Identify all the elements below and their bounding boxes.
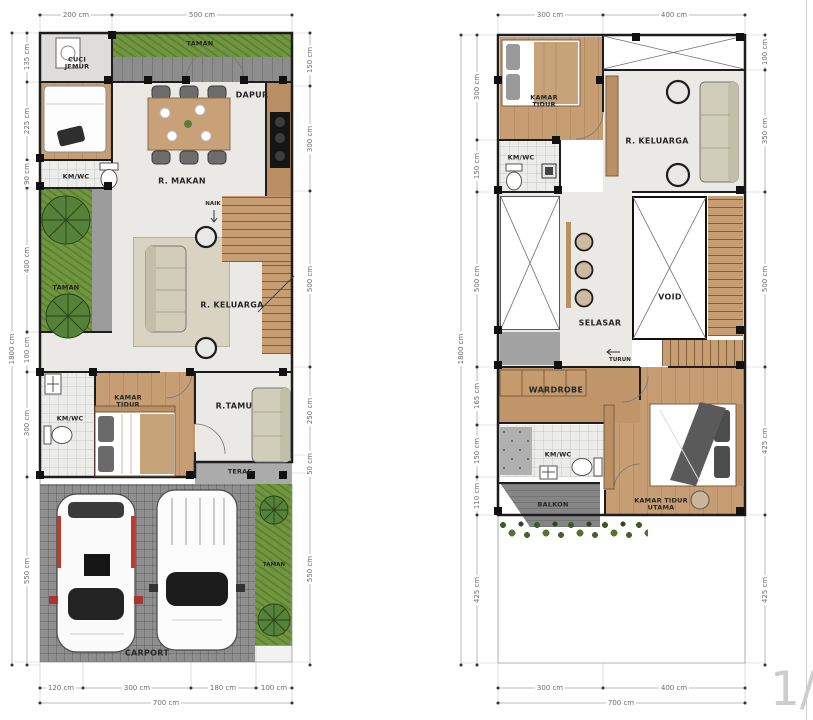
wardrobe-floor	[498, 367, 640, 423]
room-label-balkon: BALKON	[537, 501, 568, 508]
dim-dot	[602, 687, 605, 690]
dim-dot	[26, 476, 29, 479]
garden-path	[92, 188, 112, 332]
dim-label-total: 700 cm	[606, 699, 636, 707]
shaft-ledge	[500, 332, 560, 365]
dim-dot	[39, 687, 42, 690]
room-label-taman-mid: TAMAN	[53, 284, 80, 291]
dim-label: 250 cm	[306, 396, 314, 426]
dim-label: 150 cm	[306, 45, 314, 75]
dim-dot	[309, 32, 312, 35]
dim-label: 550 cm	[23, 556, 31, 586]
dim-dot	[602, 14, 605, 17]
dim-label: 400 cm	[659, 11, 689, 19]
dim-label: 400 cm	[23, 245, 31, 275]
stairs-up-run1	[222, 196, 292, 262]
dim-dot	[26, 664, 29, 667]
planting-strip	[498, 518, 648, 544]
dim-dot	[460, 664, 463, 667]
void-area	[632, 196, 707, 340]
dim-dot	[744, 687, 747, 690]
room-label-taman-bottom: TAMAN	[263, 562, 285, 568]
dim-dot	[764, 69, 767, 72]
dim-dot	[476, 514, 479, 517]
floor-plan-sheet: CUCI JEMUR TAMAN DAPUR R. MAKAN KM/WC TA…	[0, 0, 813, 720]
dim-dot	[11, 664, 14, 667]
stairs-up-run2	[262, 262, 292, 354]
dim-dot	[497, 687, 500, 690]
dim-label: 135 cm	[23, 42, 31, 72]
dim-label: 425 cm	[761, 575, 769, 605]
dim-label-total: 1800 cm	[8, 332, 16, 367]
room-label-r-keluarga: R. KELUARGA	[200, 300, 263, 309]
structural-column	[494, 507, 502, 515]
dim-label-total: 1800 cm	[457, 332, 465, 367]
roof-open-strip	[603, 35, 745, 70]
dim-dot	[764, 514, 767, 517]
room-label-kamar-tidur: KAMAR TIDUR	[106, 395, 150, 410]
dim-label: 120 cm	[46, 684, 76, 692]
dim-label: 200 cm	[61, 11, 91, 19]
family-room-floor	[603, 70, 743, 192]
dim-label: 500 cm	[306, 264, 314, 294]
dim-dot	[291, 702, 294, 705]
dim-label: 300 cm	[23, 408, 31, 438]
room-label-r-keluarga-up: R. KELUARGA	[625, 136, 688, 145]
dim-label: 225 cm	[23, 106, 31, 136]
room-label-wardrobe: WARDROBE	[529, 385, 583, 394]
dim-dot	[476, 139, 479, 142]
dim-label: 550 cm	[306, 554, 314, 584]
room-label-kmwc-top: KM/WC	[63, 173, 90, 180]
dim-label: 500 cm	[473, 264, 481, 294]
dim-dot	[309, 664, 312, 667]
room-label-cuci-jemur: CUCI JEMUR	[60, 57, 94, 72]
room-label-kamar-tidur-utama: KAMAR TIDUR UTAMA	[630, 498, 692, 513]
dim-dot	[476, 191, 479, 194]
room-label-taman-top: TAMAN	[187, 40, 214, 47]
dim-label: 165 cm	[473, 381, 481, 411]
hall-floor	[40, 332, 112, 372]
dim-dot	[460, 34, 463, 37]
room-label-kamar-tidur-up: KAMAR TIDUR	[522, 95, 566, 110]
taman-mid-strip	[40, 188, 92, 332]
page-number-watermark: 1/1	[770, 662, 813, 717]
dim-label: 500 cm	[187, 11, 217, 19]
dim-dot	[82, 687, 85, 690]
dim-label: 300 cm	[473, 72, 481, 102]
dim-label: 300 cm	[535, 684, 565, 692]
room-label-dapur: DAPUR	[236, 90, 269, 99]
dim-dot	[744, 702, 747, 705]
dim-label: 300 cm	[306, 124, 314, 154]
stair-label-turun: TURUN	[609, 357, 631, 363]
dim-dot	[497, 14, 500, 17]
dim-label: 110 cm	[473, 481, 481, 511]
bedroom2-floor	[500, 37, 603, 140]
dim-label: 500 cm	[761, 264, 769, 294]
dim-dot	[476, 366, 479, 369]
dim-dot	[39, 14, 42, 17]
dim-dot	[26, 371, 29, 374]
dim-label: 150 cm	[473, 151, 481, 181]
room-label-r-tamu: R.TAMU	[216, 401, 253, 410]
r-tamu-floor	[195, 372, 292, 462]
stair-label-naik: NAIK	[205, 201, 221, 207]
kmwc-bottom-floor	[40, 372, 95, 477]
dim-dot	[764, 191, 767, 194]
dim-label: 300 cm	[122, 684, 152, 692]
kmwc-up-floor	[500, 140, 560, 192]
stairs-down-run1	[708, 196, 743, 336]
dim-dot	[26, 81, 29, 84]
living-rug	[133, 237, 230, 347]
shower-area	[500, 427, 532, 475]
dim-dot	[26, 331, 29, 334]
dim-dot	[764, 664, 767, 667]
dim-dot	[744, 14, 747, 17]
dim-dot	[476, 476, 479, 479]
dim-label: 150 cm	[473, 436, 481, 466]
dim-dot	[309, 190, 312, 193]
open-shaft	[500, 196, 560, 330]
room-label-kmwc-bottom: KM/WC	[57, 415, 84, 422]
dim-dot	[111, 14, 114, 17]
kamar-tidur-floor	[95, 372, 195, 477]
dim-label: 350 cm	[761, 116, 769, 146]
service-room-floor	[40, 82, 112, 160]
room-label-void: VOID	[658, 292, 682, 301]
dim-label: 100 cm	[23, 335, 31, 365]
room-label-selasar: SELASAR	[579, 318, 622, 327]
dim-dot	[291, 687, 294, 690]
dim-dot	[476, 424, 479, 427]
room-label-carport: CARPORT	[125, 648, 169, 657]
dim-dot	[497, 702, 500, 705]
dim-dot	[309, 85, 312, 88]
room-label-kmwc-up: KM/WC	[508, 154, 535, 161]
dim-label: 300 cm	[535, 11, 565, 19]
carport-paving	[40, 484, 255, 662]
walkway-bottom	[255, 645, 292, 662]
dim-dot	[255, 687, 258, 690]
dim-label-total: 700 cm	[151, 699, 181, 707]
dim-label: 425 cm	[761, 426, 769, 456]
dim-dot	[764, 366, 767, 369]
dim-label: 400 cm	[659, 684, 689, 692]
dim-dot	[11, 32, 14, 35]
stairs-down-run2	[662, 340, 743, 366]
dim-label: 50 cm	[306, 451, 314, 477]
dim-label: 100 cm	[761, 37, 769, 67]
dim-label: 100 cm	[259, 684, 289, 692]
kitchen-counter	[266, 82, 292, 196]
dim-dot	[26, 32, 29, 35]
room-label-teras: TERAS	[228, 468, 253, 475]
dim-label: 425 cm	[473, 575, 481, 605]
dim-dot	[26, 187, 29, 190]
sheet-border-line	[806, 0, 807, 720]
room-label-kmwc-master: KM/WC	[545, 451, 572, 458]
dim-dot	[190, 687, 193, 690]
dim-label: 180 cm	[208, 684, 238, 692]
dim-dot	[39, 702, 42, 705]
dim-dot	[476, 664, 479, 667]
dim-dot	[291, 14, 294, 17]
entry-walkway	[112, 57, 292, 82]
dim-label: 90 cm	[23, 161, 31, 187]
dim-dot	[309, 366, 312, 369]
dim-dot	[476, 34, 479, 37]
room-label-r-makan: R. MAKAN	[158, 176, 206, 185]
